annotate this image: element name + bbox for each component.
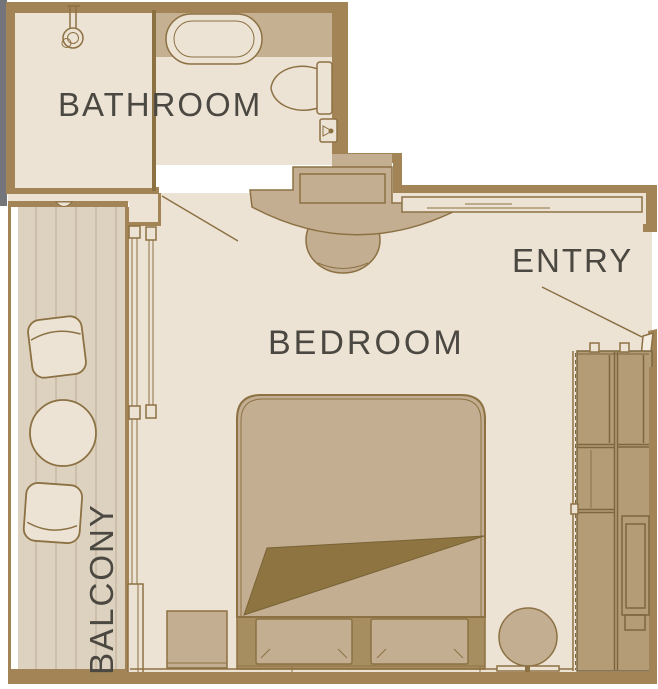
balcony-table-icon <box>30 400 96 466</box>
nightstand-icon <box>167 611 227 668</box>
closet-tab <box>620 343 629 352</box>
console-shelf-icon <box>402 197 642 212</box>
bathtub-icon <box>166 14 262 64</box>
deck-chair-icon <box>27 315 88 379</box>
wardrobe-icon <box>571 343 657 672</box>
vanity-return <box>332 154 392 168</box>
pillow-icon <box>256 619 352 664</box>
closet-tab <box>590 343 599 352</box>
bathroom-label: BATHROOM <box>58 86 262 124</box>
entry-label: ENTRY <box>512 242 633 280</box>
deck-chair-icon <box>23 482 83 544</box>
hull-edge <box>0 0 7 206</box>
bed-icon <box>237 395 485 669</box>
closet-handle <box>571 504 578 514</box>
pillow-icon <box>371 619 468 664</box>
floorplan: BATHROOM BEDROOM ENTRY BALCONY <box>0 0 658 689</box>
balcony-railing <box>8 207 11 672</box>
balcony-label: BALCONY <box>83 503 121 675</box>
bedroom-label: BEDROOM <box>268 324 465 363</box>
toilet-paper-holder-icon <box>320 119 337 142</box>
